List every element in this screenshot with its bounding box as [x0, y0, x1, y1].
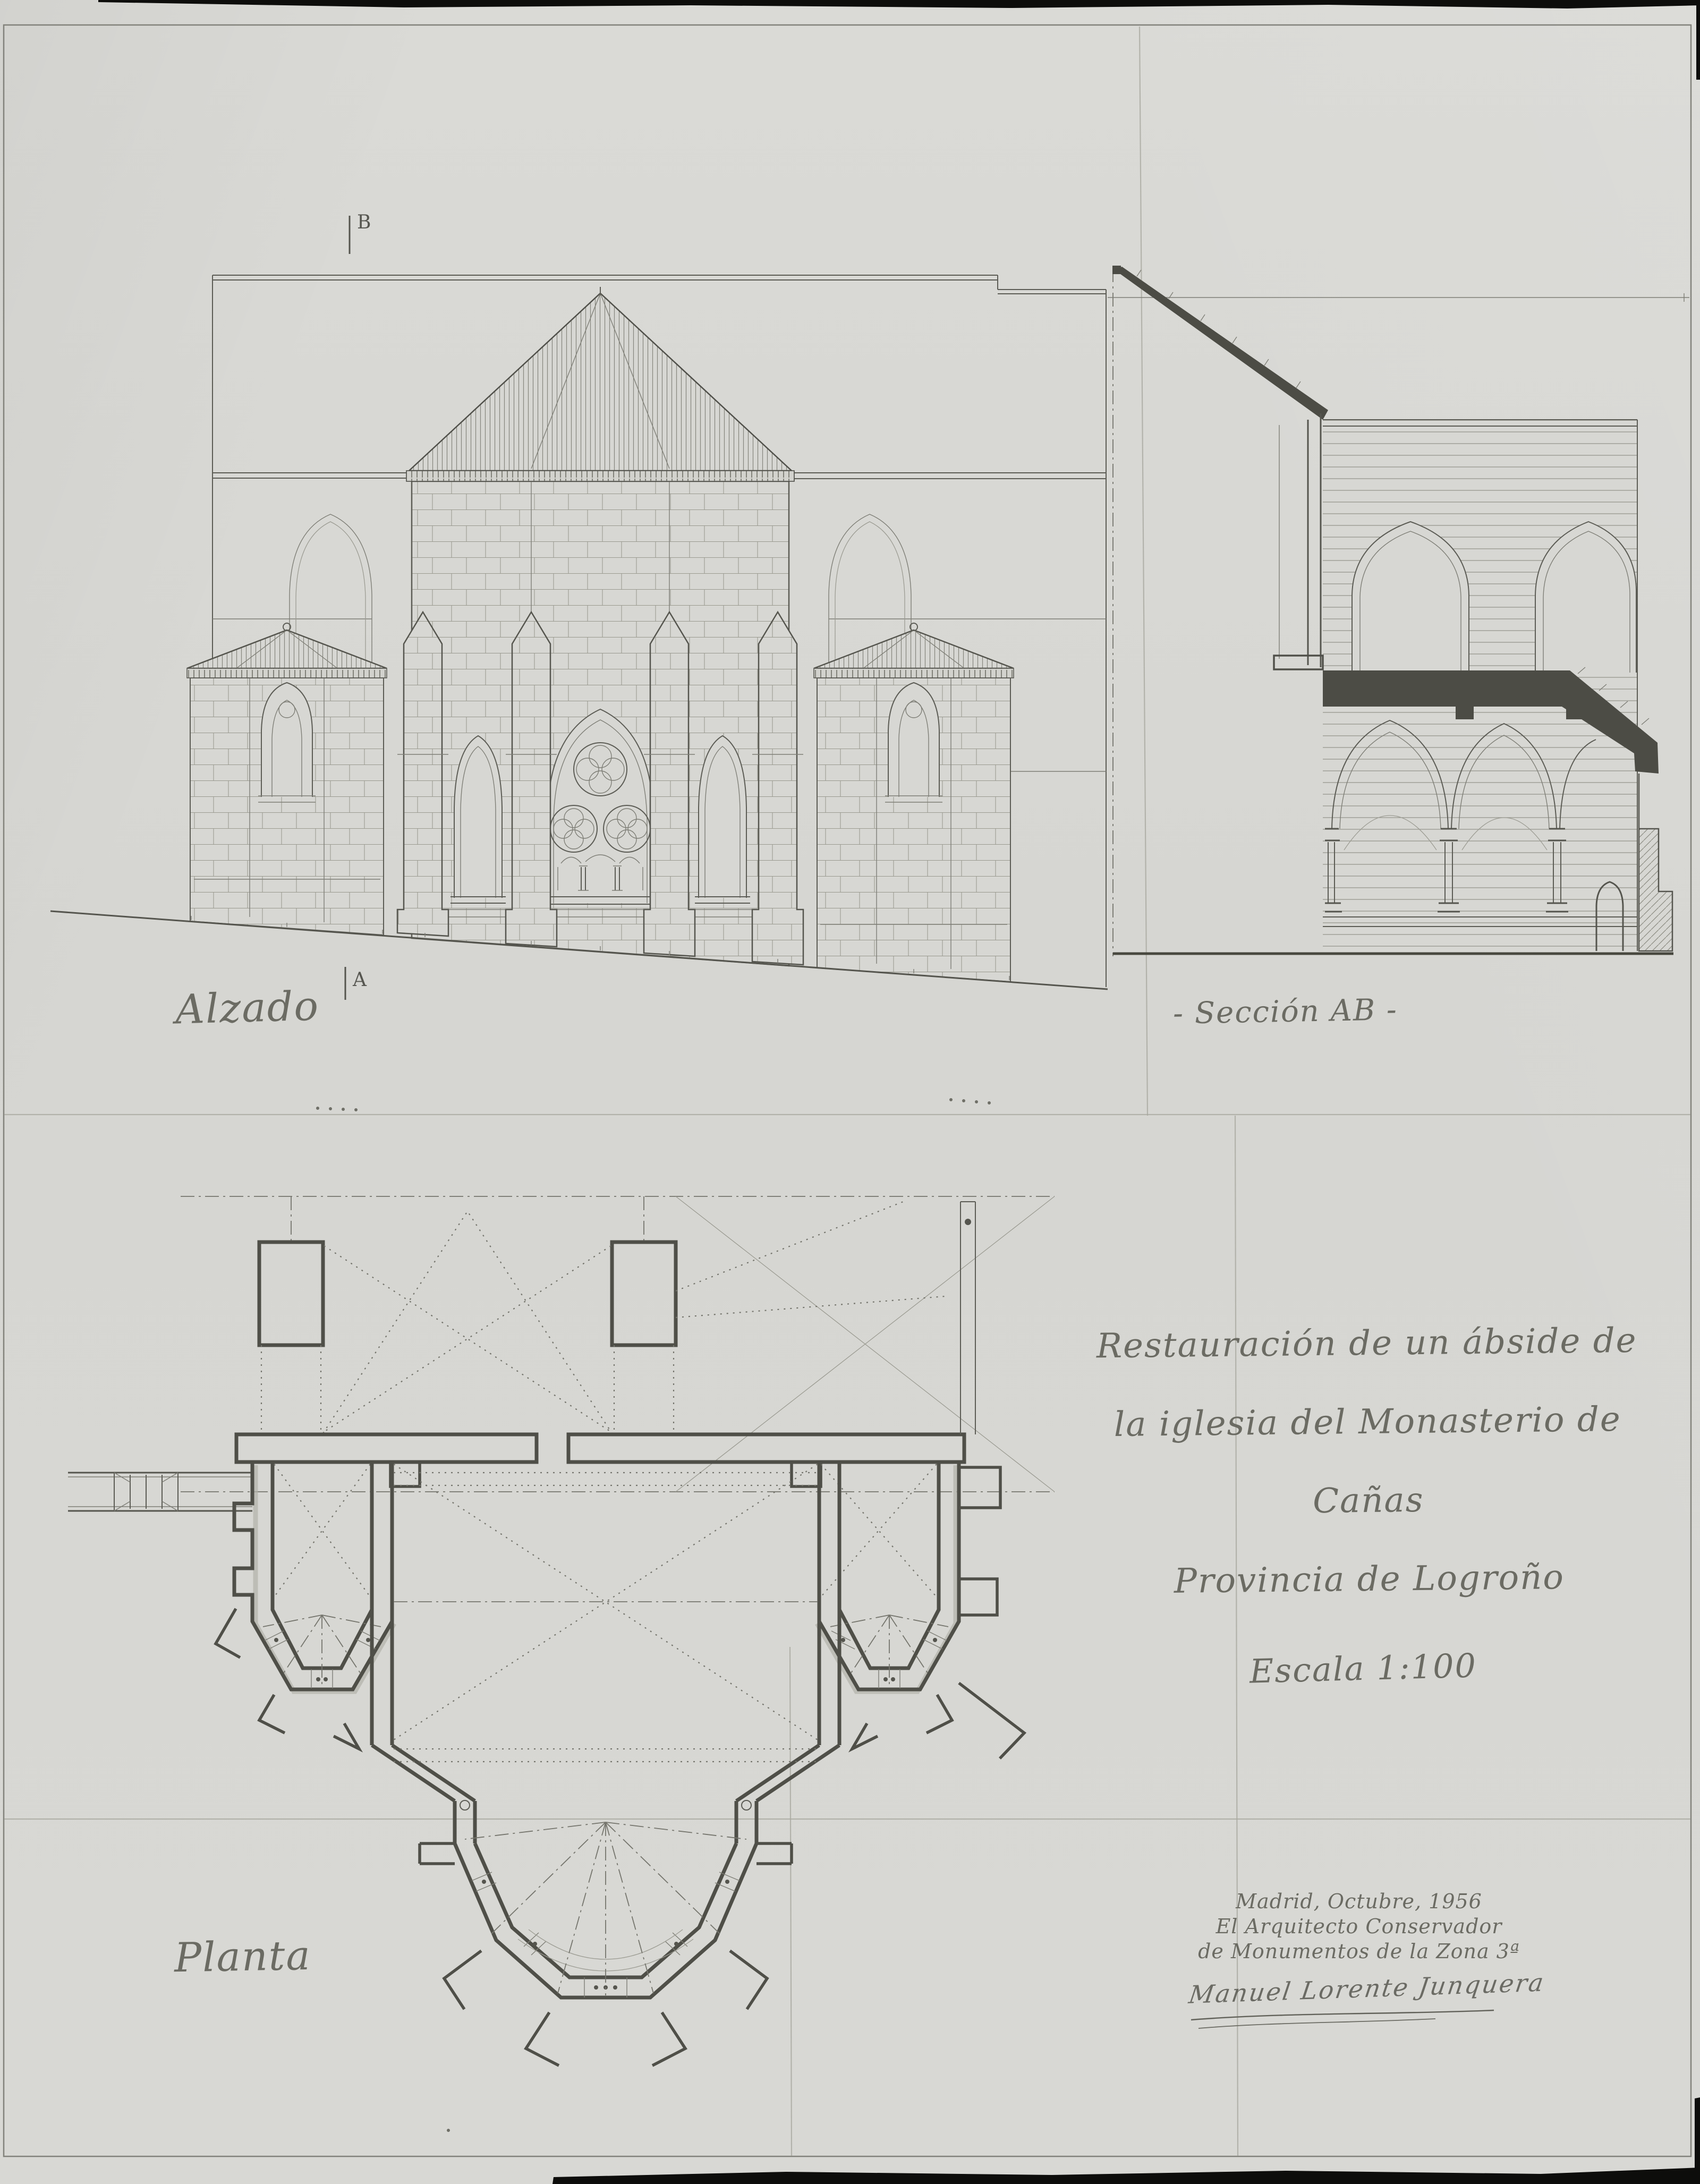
- credit-date: Madrid, Octubre, 1956: [1194, 1889, 1524, 1914]
- credit-architect-2: de Monumentos de la Zona 3ª: [1194, 1939, 1524, 1964]
- elevation-left-chapel: [187, 623, 387, 935]
- elevation-label: Alzado: [175, 982, 320, 1033]
- plan-transept-wall-right: [568, 1434, 964, 1462]
- section-drawing: [1108, 266, 1689, 956]
- elevation-right-chapel: [814, 623, 1014, 982]
- plan-right-chapel: [817, 1462, 1024, 1758]
- credit-architect-1: El Arquitecto Conservador: [1194, 1914, 1524, 1939]
- fold-creases: [4, 27, 1690, 2156]
- title-line-2: la iglesia del Monasterio de: [1061, 1380, 1673, 1465]
- title-line-4: Provincia de Logroño: [1064, 1537, 1675, 1622]
- plan-central-apse: [372, 1462, 839, 2066]
- title-line-1: Restauración de un ábside de: [1061, 1301, 1672, 1386]
- plan-left-chapel: [216, 1462, 394, 1749]
- scale-label: Escala 1:100: [1249, 1646, 1477, 1690]
- section-label: - Sección AB -: [1172, 992, 1398, 1031]
- plan-pier-right: [612, 1242, 676, 1345]
- plan-transept-wall-left: [236, 1434, 537, 1462]
- title-block: Restauración de un ábside de la iglesia …: [1061, 1301, 1675, 1622]
- sheet-graphics: [0, 0, 1700, 2184]
- section-marker-b: B: [357, 211, 371, 233]
- signature-underline: [1191, 2010, 1494, 2028]
- drawing-sheet: Restauración de un ábside de la iglesia …: [0, 0, 1700, 2184]
- plan-label: Planta: [174, 1932, 311, 1981]
- title-line-3: Cañas: [1062, 1458, 1674, 1543]
- elevation-apse: [397, 287, 803, 966]
- scan-edges: [98, 0, 1700, 2184]
- section-left-wall: [1112, 266, 1328, 669]
- section-marker-a: A: [353, 969, 367, 991]
- sheet-frame: [4, 25, 1691, 2156]
- plan-pier-left: [259, 1242, 323, 1345]
- credit-block: Madrid, Octubre, 1956 El Arquitecto Cons…: [1194, 1889, 1524, 1964]
- elevation-drawing: [50, 216, 1108, 1000]
